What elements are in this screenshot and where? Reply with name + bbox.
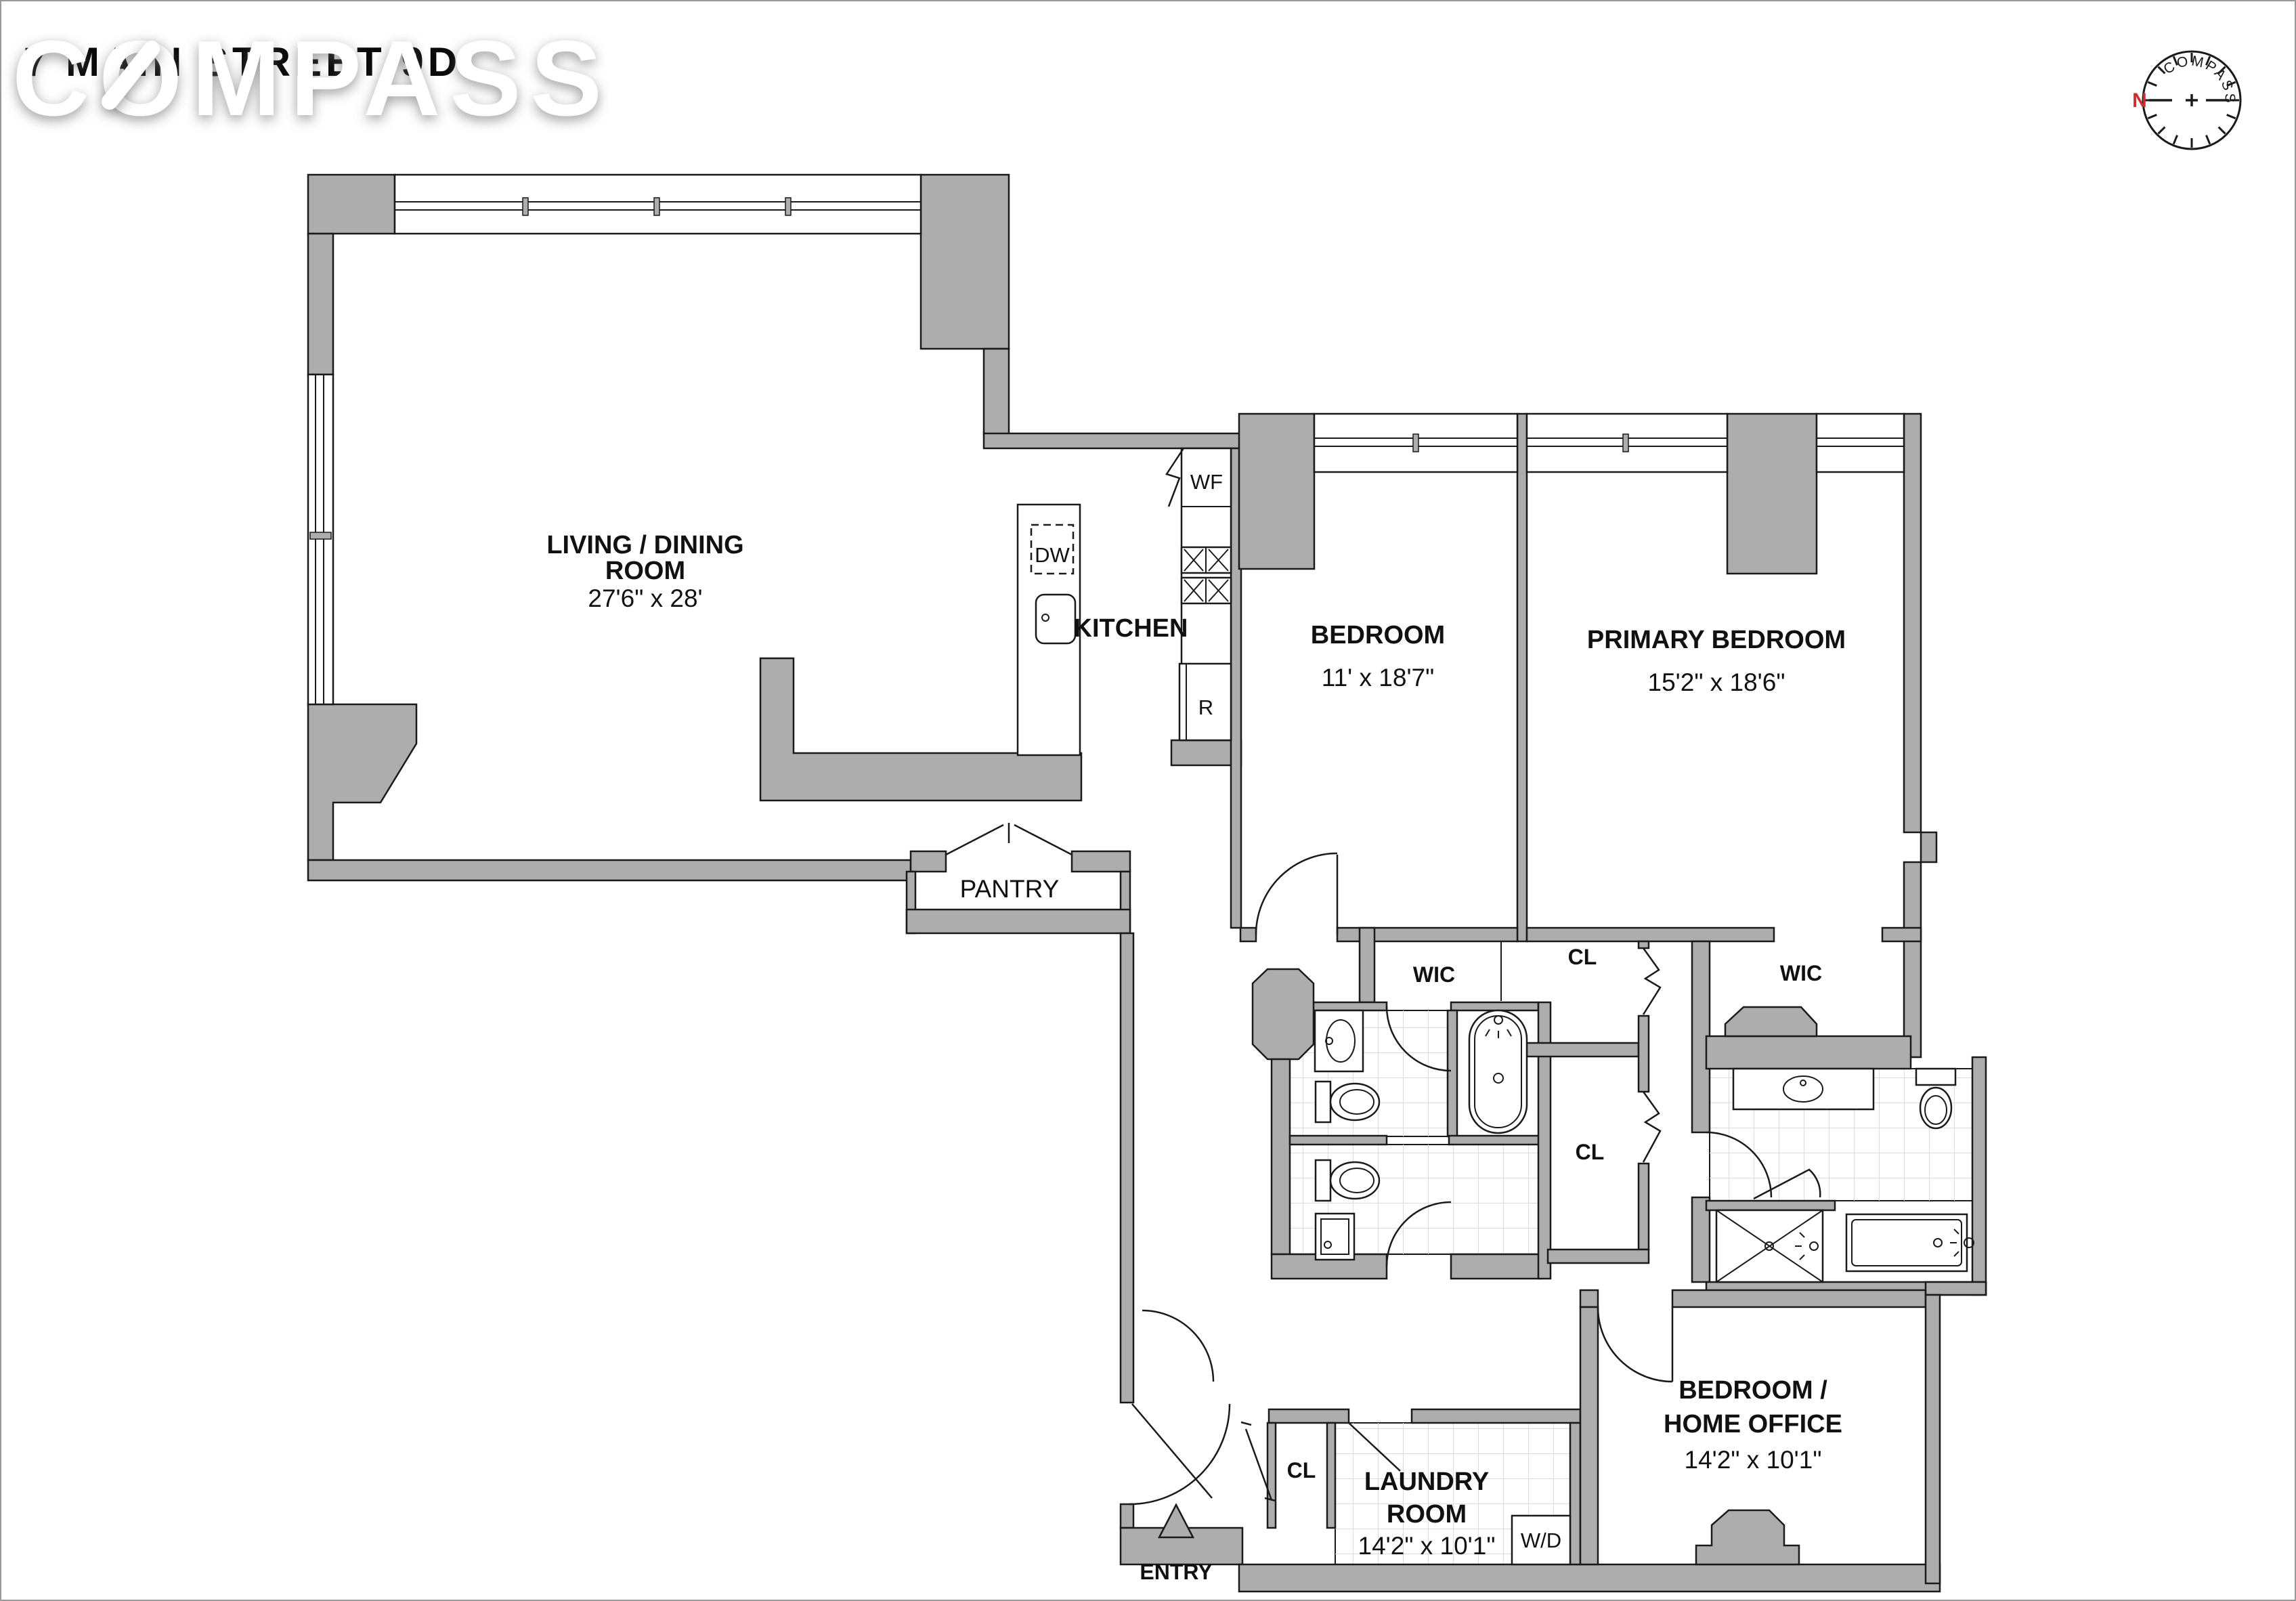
wall [1904, 414, 1921, 832]
label-dishwasher: DW [1035, 543, 1070, 567]
compass-north-label: N [2132, 89, 2147, 112]
window-mullion [785, 198, 791, 215]
wall [1269, 1409, 1349, 1423]
wall [1580, 1307, 1598, 1564]
wall [984, 433, 1241, 448]
vanity [1733, 1069, 1873, 1109]
dims-living-dining: 27'6" x 28' [588, 584, 702, 612]
wall [1580, 1290, 1598, 1307]
wall-pier [1239, 414, 1314, 569]
label-laundry-1: LAUNDRY [1364, 1468, 1489, 1496]
wall [1451, 1254, 1541, 1279]
label-living-dining-1: LIVING / DINING [546, 531, 743, 559]
toilet-tank [1316, 1160, 1330, 1201]
wall-chamfer [1725, 1007, 1817, 1036]
wall-pier [1921, 832, 1936, 862]
label-laundry-2: ROOM [1387, 1500, 1467, 1529]
wall [1882, 928, 1921, 941]
wall [1121, 933, 1133, 1403]
wall [1527, 928, 1774, 941]
wall-octagon-column [1253, 969, 1314, 1059]
bathtub [1469, 1010, 1527, 1133]
label-primary-bedroom: PRIMARY BEDROOM [1587, 626, 1846, 654]
wall [1570, 1423, 1580, 1564]
window-mullion [654, 198, 659, 215]
wall [1448, 1010, 1457, 1136]
label-range: R [1198, 696, 1213, 719]
wall [911, 851, 946, 872]
label-living-dining-2: ROOM [605, 557, 685, 585]
wall [1451, 1002, 1538, 1010]
wall [1268, 1423, 1276, 1528]
label-pantry: PANTRY [960, 875, 1060, 903]
window-mullion [1623, 434, 1628, 452]
wall [1639, 941, 1649, 948]
wall [1548, 1250, 1649, 1263]
wall [1121, 1504, 1133, 1528]
wall [308, 860, 911, 880]
window-mullion [1413, 434, 1418, 452]
bathtub [1846, 1214, 1967, 1271]
wall [1240, 928, 1256, 941]
wall-pier [1727, 414, 1817, 574]
label-bedroom-home-office-1: BEDROOM / [1678, 1376, 1827, 1405]
wall [1972, 1057, 1986, 1295]
dims-laundry: 14'2" x 10'1" [1358, 1532, 1496, 1560]
window-mullion [310, 532, 331, 539]
window [1817, 414, 1904, 472]
label-bedroom-home-office-2: HOME OFFICE [1664, 1410, 1842, 1438]
wall [308, 234, 333, 375]
wall [1672, 1290, 1926, 1307]
wall [1290, 1136, 1387, 1145]
label-wic-hall: WIC [1413, 962, 1455, 987]
wall [308, 175, 395, 234]
toilet [1330, 1162, 1379, 1199]
label-kitchen: KITCHEN [1074, 614, 1188, 643]
dims-bedroom-home-office: 14'2" x 10'1" [1685, 1446, 1822, 1474]
wall [1412, 1409, 1580, 1423]
window-mullion [523, 198, 528, 215]
wall [1272, 1059, 1290, 1254]
label-cl-lower: CL [1576, 1140, 1605, 1164]
wall [1926, 1295, 1940, 1583]
dims-primary-bedroom: 15'2" x 18'6" [1648, 668, 1785, 696]
wall [1327, 1423, 1335, 1528]
wall-bedroom-divider [1517, 414, 1527, 941]
label-wine-fridge: WF [1190, 470, 1223, 494]
wall [1639, 1016, 1649, 1092]
wall [1706, 1201, 1835, 1210]
wall [1706, 1036, 1911, 1069]
wall [1449, 1136, 1541, 1145]
label-cl-upper: CL [1568, 945, 1597, 969]
wall [1527, 1043, 1639, 1056]
dims-bedroom: 11' x 18'7" [1322, 664, 1434, 691]
toilet [1330, 1084, 1379, 1120]
label-wic-primary: WIC [1780, 961, 1822, 985]
toilet-tank [1316, 1082, 1330, 1122]
label-washer-dryer: W/D [1521, 1529, 1561, 1552]
wall [984, 349, 1009, 435]
wall [921, 175, 1009, 349]
wall [1072, 851, 1130, 872]
compass-watermark: COMPASS [12, 19, 611, 138]
label-entry: ENTRY [1140, 1560, 1212, 1584]
wall [1639, 1164, 1649, 1250]
wall [1904, 862, 1921, 1057]
wall [1926, 1282, 1986, 1295]
label-cl-entry: CL [1287, 1458, 1316, 1482]
wall [1239, 1564, 1940, 1592]
wall [1360, 928, 1374, 1002]
label-bedroom: BEDROOM [1311, 621, 1445, 649]
toilet-tank [1916, 1069, 1955, 1085]
floor-plan-svg: LIVING / DINING ROOM 27'6" x 28' KITCHEN… [0, 0, 2296, 1601]
wall [907, 910, 1130, 933]
